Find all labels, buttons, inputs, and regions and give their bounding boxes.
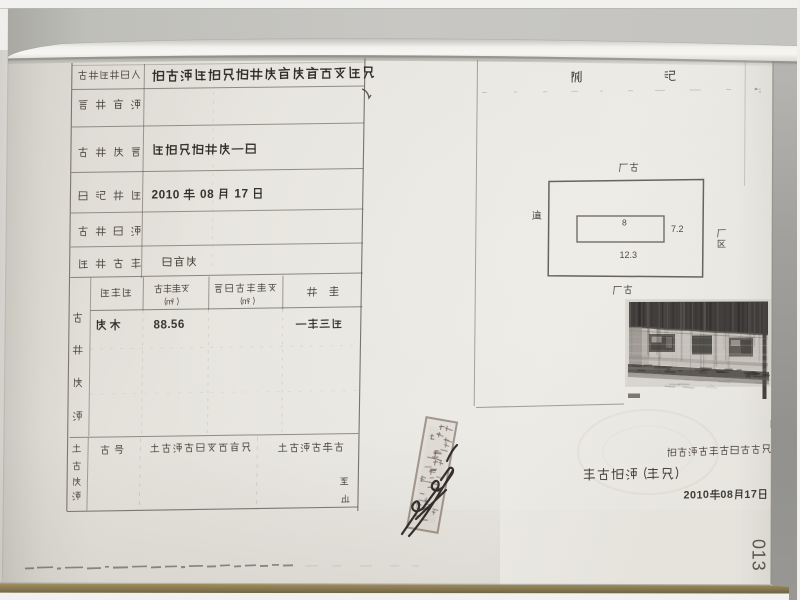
svg-text:²: ² <box>171 297 174 307</box>
svg-text:8: 8 <box>154 318 161 331</box>
svg-text:1: 1 <box>166 187 173 201</box>
svg-text:013: 013 <box>749 539 769 571</box>
svg-text:²: ² <box>247 296 250 306</box>
svg-text:0: 0 <box>159 188 166 202</box>
svg-text:12.3: 12.3 <box>620 250 638 260</box>
svg-text:1: 1 <box>697 489 703 501</box>
svg-text:5: 5 <box>171 318 178 331</box>
svg-text:8: 8 <box>622 218 627 228</box>
svg-text:7: 7 <box>242 187 249 201</box>
svg-text:7: 7 <box>751 489 757 501</box>
svg-text:0: 0 <box>200 187 207 201</box>
svg-text:7.2: 7.2 <box>671 224 684 234</box>
svg-text:8: 8 <box>727 489 733 501</box>
svg-text:6: 6 <box>178 318 185 331</box>
svg-text:0: 0 <box>173 187 180 201</box>
svg-text:0: 0 <box>690 489 696 501</box>
svg-text:0: 0 <box>703 489 709 501</box>
svg-text:8: 8 <box>207 187 214 201</box>
svg-text:1: 1 <box>744 489 750 501</box>
svg-text:0: 0 <box>720 489 726 501</box>
svg-text:1: 1 <box>234 187 241 201</box>
svg-text:2: 2 <box>152 188 159 202</box>
svg-text:2: 2 <box>684 489 690 501</box>
